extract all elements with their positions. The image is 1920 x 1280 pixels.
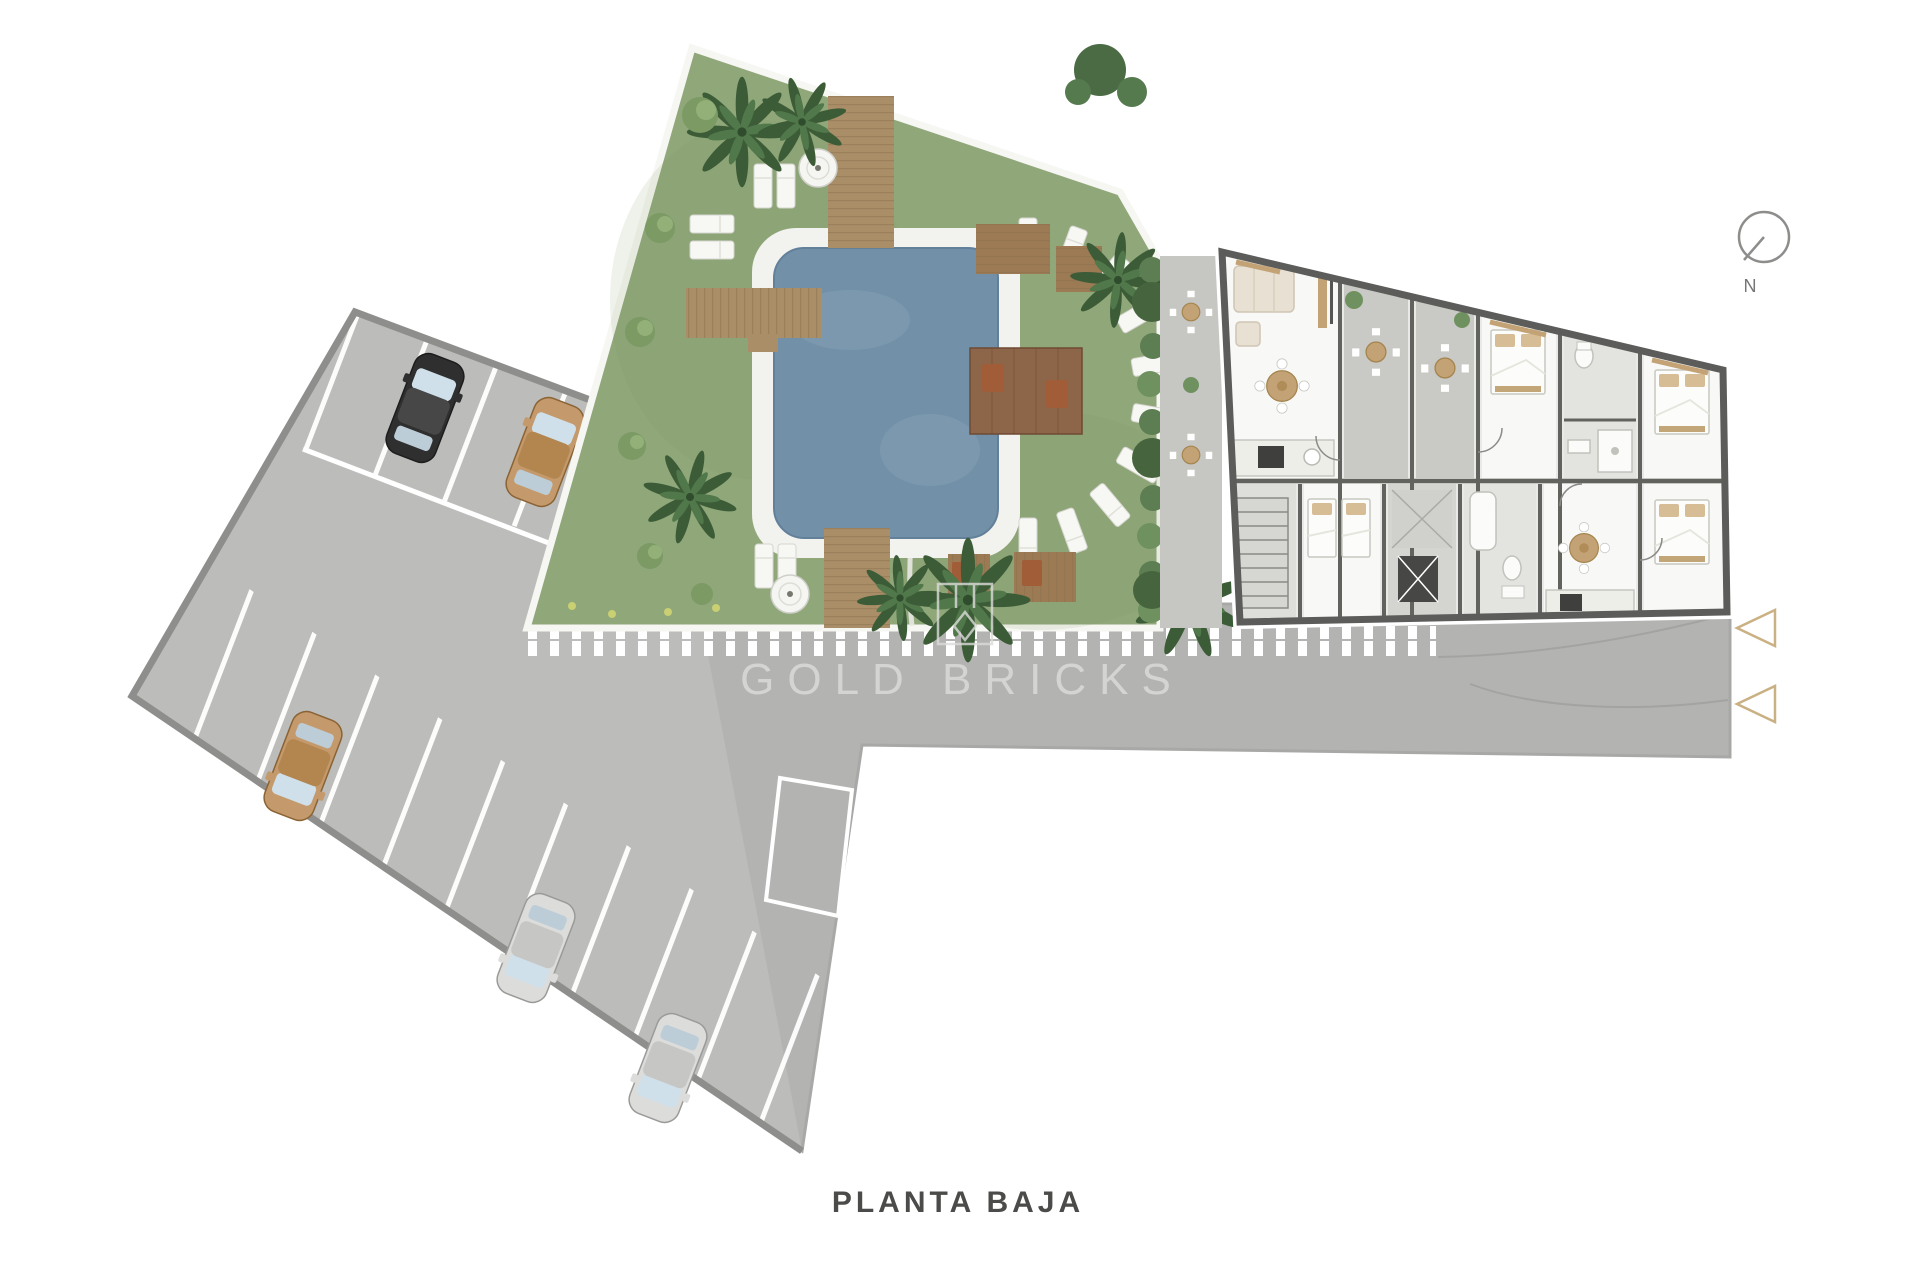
plan-title: PLANTA BAJA	[832, 1186, 1084, 1219]
double-bed	[1655, 500, 1709, 564]
entrance-arrows	[1737, 610, 1775, 722]
parasol-table	[771, 575, 809, 613]
tree-canopy	[1065, 44, 1147, 107]
compass-needle-icon	[1744, 237, 1764, 260]
single-bed	[1342, 499, 1370, 557]
site-plan-canvas: GOLD BRICKS N PLANTA BAJA	[0, 0, 1920, 1280]
pergola-deck	[970, 348, 1082, 434]
parasol-table	[799, 149, 837, 187]
floor-plan-page: GOLD BRICKS N PLANTA BAJA	[0, 0, 1920, 1280]
sun-lounger	[690, 241, 734, 259]
north-compass: N	[1739, 212, 1789, 296]
compass-north-label: N	[1744, 276, 1757, 296]
room-terrace-1	[1344, 284, 1408, 478]
kitchen-2	[1546, 590, 1634, 614]
apartment-building	[1222, 252, 1727, 622]
sun-lounger	[754, 164, 772, 208]
sun-lounger	[690, 215, 734, 233]
sun-lounger	[755, 544, 773, 588]
entrance-arrow-icon	[1737, 610, 1775, 646]
entrance-arrow-icon	[1737, 686, 1775, 722]
double-bed	[1655, 370, 1709, 434]
single-bed	[1308, 499, 1336, 557]
watermark-text: GOLD BRICKS	[740, 655, 1184, 704]
garden	[527, 48, 1267, 679]
terrace-strip	[1160, 256, 1222, 628]
wood-deck-top	[828, 96, 894, 248]
double-bed	[1491, 330, 1545, 394]
